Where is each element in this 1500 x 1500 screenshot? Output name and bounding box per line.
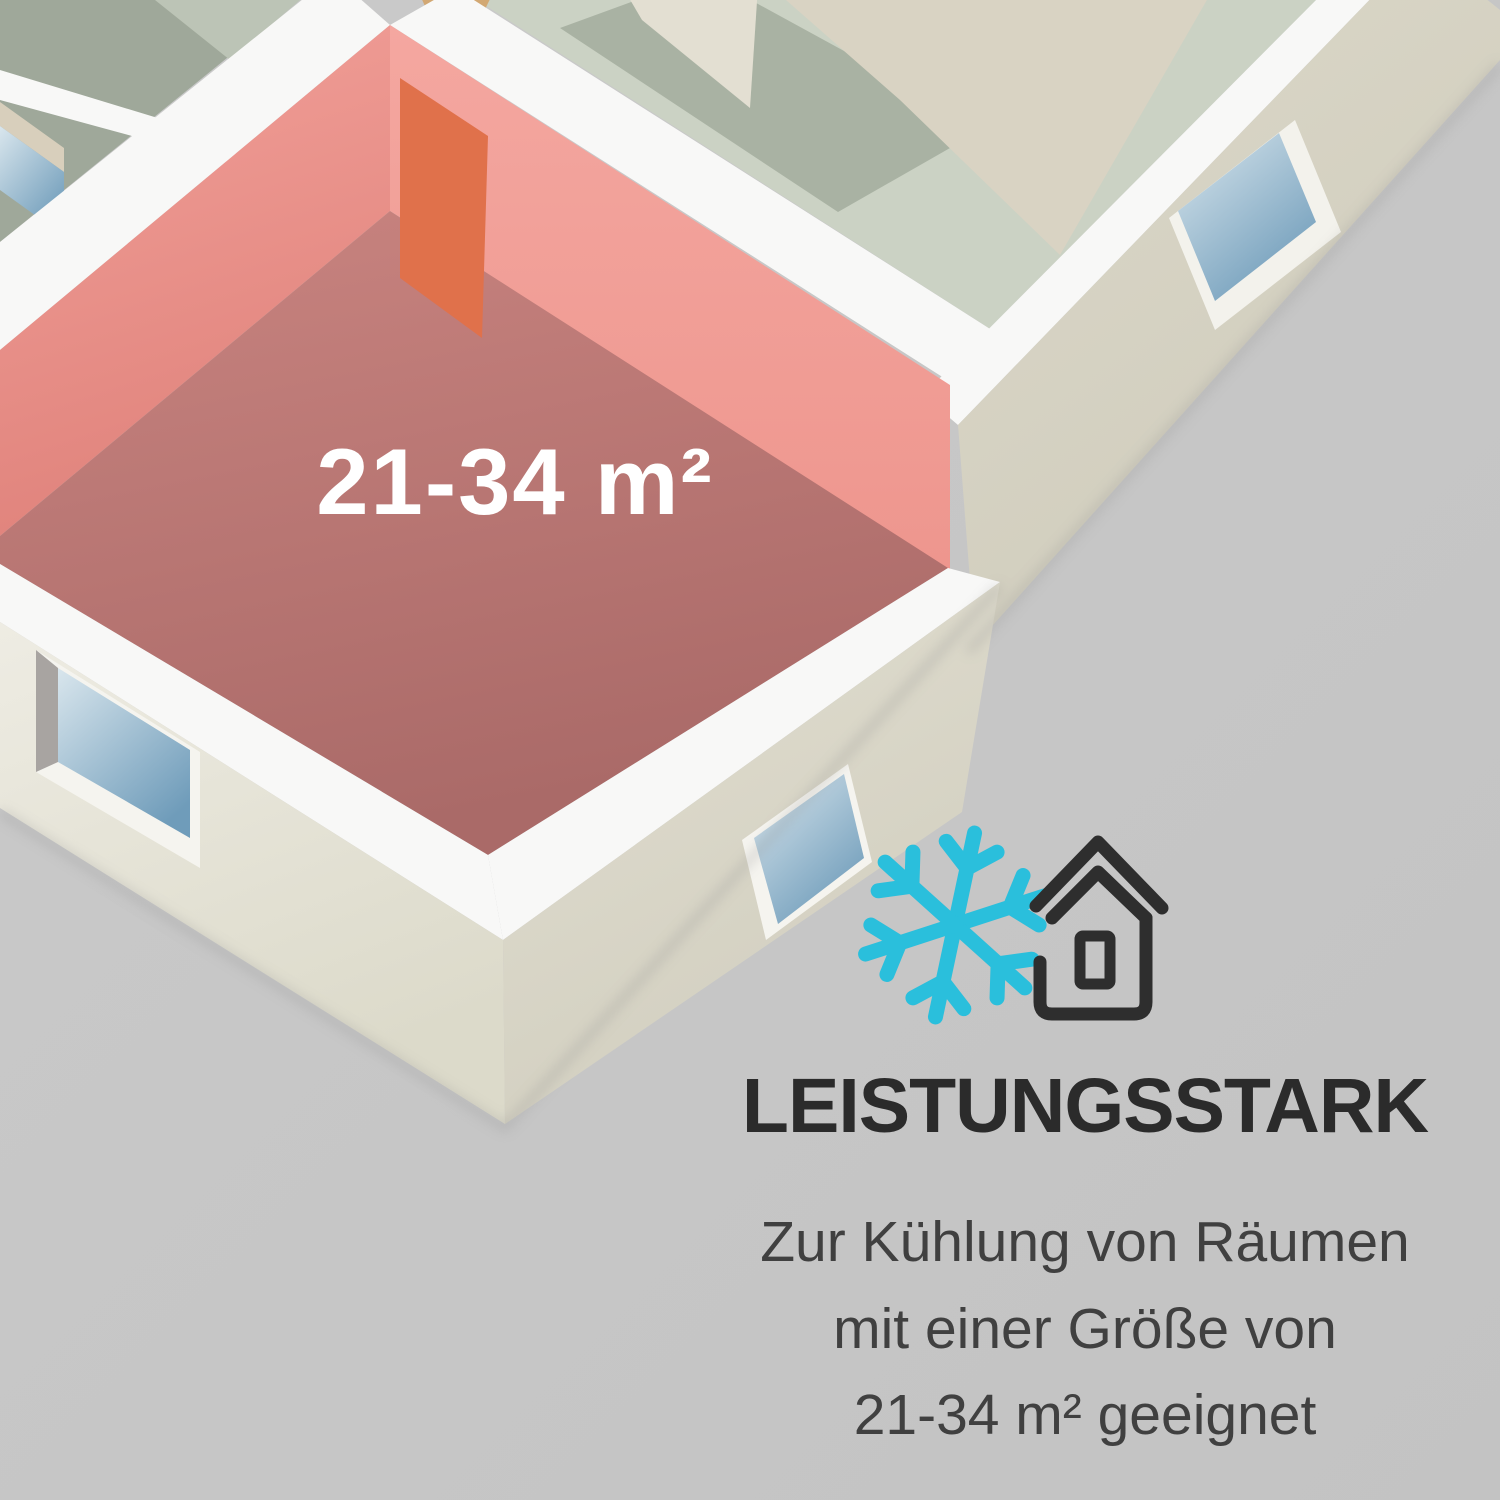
info-line: Zur Kühlung von Räumen	[630, 1199, 1500, 1286]
info-block: LEISTUNGSSTARK Zur Kühlung von Räumen mi…	[630, 1062, 1500, 1459]
info-heading: LEISTUNGSSTARK	[630, 1062, 1500, 1151]
room-area-label: 21-34 m²	[115, 428, 915, 536]
info-line: mit einer Größe von	[630, 1286, 1500, 1373]
info-line: 21-34 m² geeignet	[630, 1372, 1500, 1459]
left-window-reveal	[36, 650, 58, 772]
product-infographic: 21-34 m² LEISTUNGSSTARK Zur Kühlung von …	[0, 0, 1500, 1500]
